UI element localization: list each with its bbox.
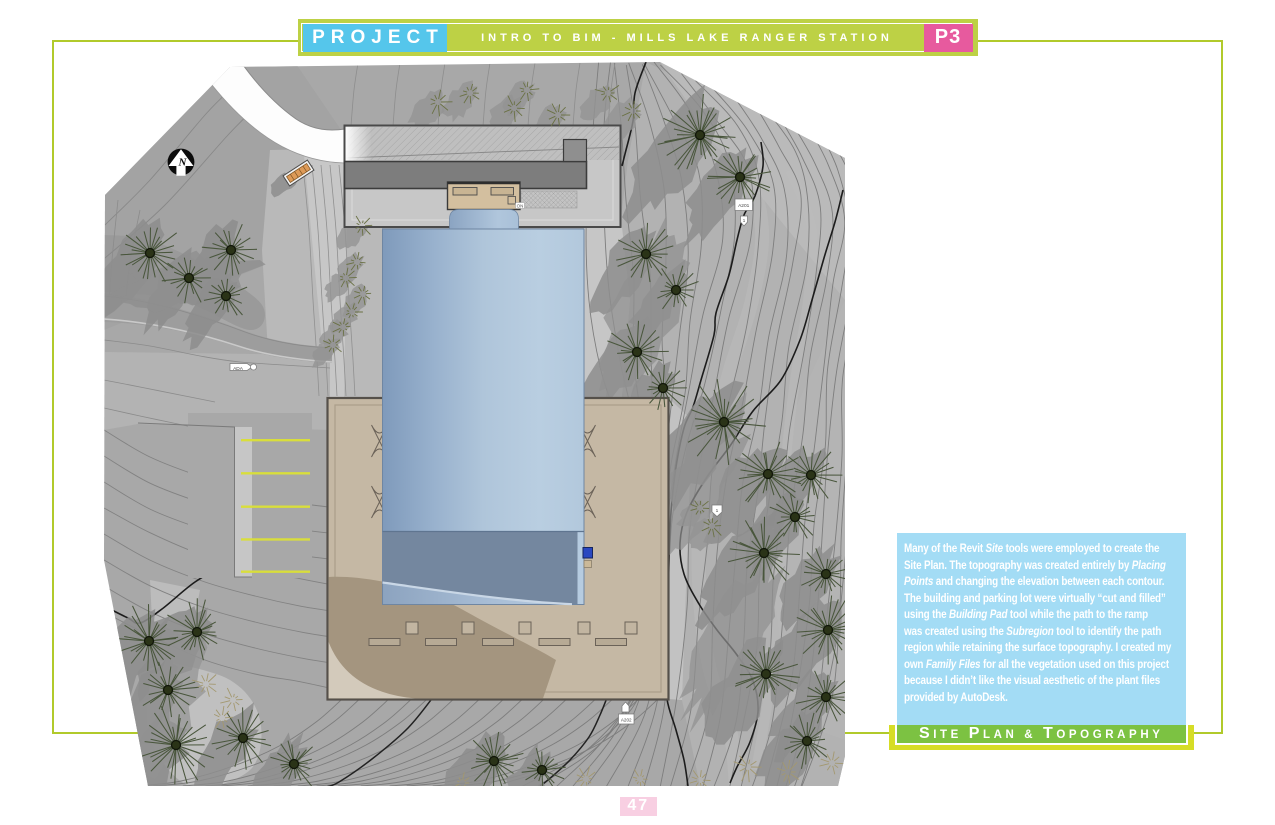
svg-text:A201: A201	[738, 203, 750, 209]
svg-text:N: N	[178, 157, 188, 169]
svg-text:1: 1	[716, 508, 719, 514]
svg-text:ADA: ADA	[233, 366, 244, 372]
svg-text:A202: A202	[621, 717, 632, 722]
svg-text:ON: ON	[517, 203, 524, 208]
